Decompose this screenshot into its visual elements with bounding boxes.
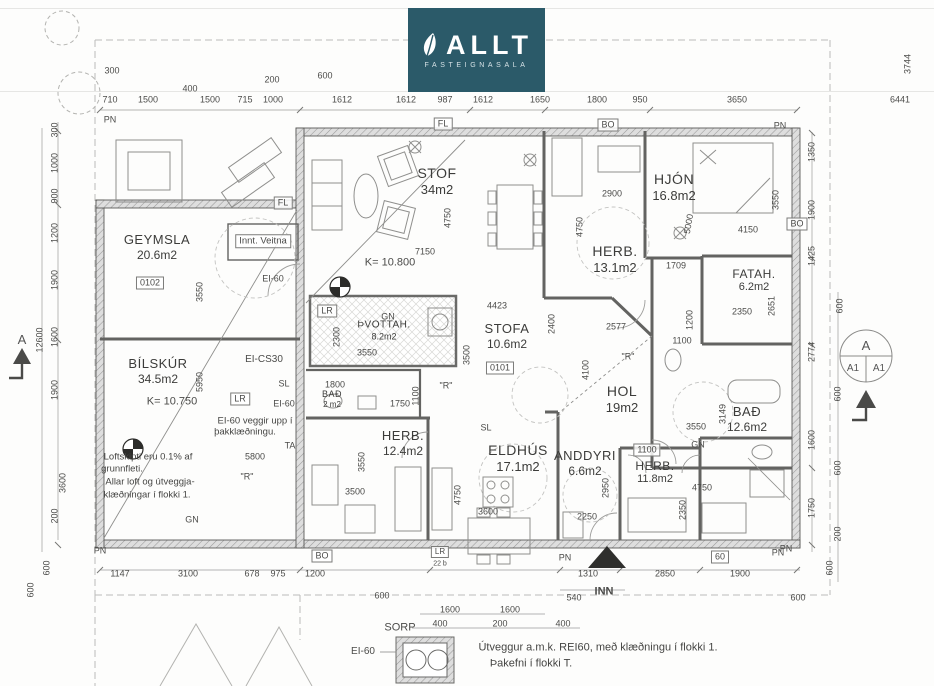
wall-tag: INN [595,587,614,598]
dimension-label: 1600 [440,606,460,615]
dimension-label: 7150 [415,248,435,257]
dimension-label: 1750 [808,498,817,518]
dimension-label: 1500 [138,96,158,105]
room-area: 2 m2 [322,400,342,410]
room-label-bílskúr: BÍLSKÚR34.5m2 [128,356,187,386]
note-text: grunnfleti. [101,464,143,474]
dimension-label: 3550 [196,282,205,302]
room-label-eldhús: ELDHÚS17.1m2 [488,442,548,474]
wall-tag: TA [285,442,296,451]
room-name: HJÓN [652,171,695,188]
dimension-label: 3600 [59,473,68,493]
room-name: BÍLSKÚR [128,356,187,372]
dimension-label: 1147 [110,570,129,579]
room-name: HERB. [592,243,637,260]
wall-tag: "R" [241,473,254,482]
note-text: EI-60 veggir upp í [218,416,293,426]
dimension-label: 2774 [808,342,817,362]
dimension-label: 600 [43,560,52,575]
dimension-label: 1600 [500,606,520,615]
dimension-label: 4750 [692,484,712,493]
wall-tag: EI-60 [351,647,375,657]
dimension-label: 710 [102,96,117,105]
dimension-label: 1200 [305,570,325,579]
dimension-label: 600 [317,72,332,81]
dimension-label: 3550 [686,423,706,432]
dimension-label: 1750 [390,400,410,409]
dimension-label: 2300 [333,327,342,347]
dimension-label: 2400 [548,314,557,334]
dimension-label: 1650 [530,96,550,105]
dimension-label: 1500 [200,96,220,105]
dimension-label: 3550 [357,349,377,358]
dimension-label: 2577 [606,323,626,332]
note-text: þakklæðningu. [214,427,276,437]
room-name: FATAH. [732,267,775,281]
room-label-geymsla: GEYMSLA20.6m2 [124,232,190,262]
dimension-label: 0101 [486,362,514,375]
wall-tag: K= 10.800 [365,258,415,269]
room-area: 6.2m2 [732,282,775,295]
dimension-label: 2651 [768,296,777,316]
room-area: 6.6m2 [554,464,616,478]
dimension-label: 4750 [454,485,463,505]
room-area: 8.2m2 [357,332,410,343]
wall-tag: PN [774,122,787,131]
dimension-label: 300 [104,67,119,76]
wall-tag: LR [317,305,337,318]
dimension-label: 1612 [396,96,416,105]
room-area: 34m2 [417,182,456,198]
dimension-label: 1612 [473,96,493,105]
dimension-label: 4750 [576,217,585,237]
dimension-label: 975 [270,570,285,579]
wall-tag: PN [94,547,107,556]
dimension-label: 3500 [345,488,365,497]
floor-plan-page: A A A1 A1 GEYMSLA20.6m2BÍLSKÚR34.5m2STOF… [0,0,934,686]
room-area: 12.6m2 [727,420,767,434]
room-area: 20.6m2 [124,248,190,262]
dimension-label: 2250 [577,513,597,522]
room-name: ANDDYRI [554,448,616,464]
dimension-label: 4750 [444,208,453,228]
dimension-label: 400 [182,85,197,94]
room-label-stof: STOF34m2 [417,165,456,197]
dimension-label: 3600 [478,508,498,517]
dimension-label: 5950 [196,372,205,392]
room-label-herb: HERB.11.8m2 [635,459,674,487]
dimension-label: 1425 [808,246,817,266]
room-name: HOL [606,383,639,400]
room-label-þvottah: ÞVOTTAH.8.2m2 [357,320,410,343]
room-label-hol: HOL19m2 [606,383,639,415]
logo-brand-text: ALLT [446,32,533,59]
dimension-label: 1000 [263,96,283,105]
wall-tag: 22 b [433,561,447,568]
room-label-bað: BAÐ12.6m2 [727,404,767,434]
dimension-label: 200 [492,620,507,629]
dimension-label: 3650 [727,96,747,105]
wall-tag: LR [431,546,449,558]
room-label-bað: BAÐ2 m2 [322,389,342,409]
dimension-label: 540 [566,594,581,603]
room-area: 17.1m2 [488,459,548,475]
dimension-label: 0102 [136,277,164,290]
room-area: 13.1m2 [592,260,637,276]
dimension-label: 300 [51,122,60,137]
wall-tag: GN [185,516,199,525]
note-text: Allar loft og útveggja- [105,477,194,487]
wall-tag: PN [772,549,785,558]
dimension-label: 2950 [602,478,611,498]
room-area: 10.6m2 [485,337,530,351]
dimension-label: 6441 [890,96,910,105]
wall-tag: LR [230,393,250,406]
note-text: Loftskipti eru 0.1% af [104,452,193,462]
dimension-label: 1900 [51,270,60,290]
plan-label-layer: GEYMSLA20.6m2BÍLSKÚR34.5m2STOF34m2HJÓN16… [0,0,934,686]
room-name: ELDHÚS [488,442,548,459]
dimension-label: 678 [244,570,259,579]
wall-tag: BO [786,218,807,231]
dimension-label: 3149 [719,404,728,424]
room-label-stofa: STOFA10.6m2 [485,321,530,351]
dimension-label: 1100 [633,444,660,457]
dimension-label: 1100 [672,337,691,346]
dimension-label: 1709 [666,262,686,271]
dimension-label: 1612 [332,96,352,105]
wall-tag: "R" [622,353,635,362]
dimension-label: 715 [237,96,252,105]
dimension-label: 2350 [679,500,688,520]
dimension-label: 1600 [51,327,60,347]
dimension-label: 3550 [772,190,781,210]
dimension-label: 1100 [412,386,421,405]
dimension-label: 3500 [463,345,472,365]
dimension-label: 2350 [732,308,752,317]
dimension-label: 600 [836,298,845,313]
room-area: 16.8m2 [652,188,695,204]
dimension-label: 2900 [602,190,622,199]
wall-tag: FL [434,118,453,131]
wall-tag: EI-60 [262,275,284,284]
wall-tag: GN [381,313,395,322]
dimension-label: 1310 [578,570,598,579]
dimension-label: 4150 [738,226,758,235]
dimension-label: 3100 [178,570,198,579]
wall-tag: BO [311,550,332,563]
dimension-label: 200 [51,508,60,523]
room-area: 19m2 [606,400,639,416]
dimension-label: 600 [826,560,835,575]
dimension-label: 600 [790,594,805,603]
dimension-label: 987 [437,96,452,105]
dimension-label: 1600 [808,430,817,450]
wall-tag: K= 10.750 [147,397,197,408]
room-name: HERB. [635,459,674,473]
dimension-label: 3550 [358,452,367,472]
dimension-label: 5000 [683,213,695,234]
dimension-label: 12600 [36,327,45,352]
logo-subtitle-text: FASTEIGNASALA [425,62,529,69]
dimension-label: 200 [834,526,843,541]
dimension-label: 1000 [51,153,60,173]
wall-tag: GN [691,441,705,450]
room-label-fatah: FATAH.6.2m2 [732,267,775,295]
room-label-hjón: HJÓN16.8m2 [652,171,695,203]
room-label-anddyri: ANDDYRI6.6m2 [554,448,616,478]
room-name: BAÐ [727,404,767,420]
dimension-label: 1800 [325,381,345,390]
dimension-label: 200 [264,76,279,85]
room-area: 34.5m2 [128,372,187,386]
wall-tag: SL [480,424,491,433]
wall-tag: "R" [440,382,453,391]
note-text: klæðningar í flokki 1. [103,490,190,500]
dimension-label: 950 [632,96,647,105]
wall-tag: EI-CS30 [245,355,283,365]
wall-tag: SL [278,380,289,389]
note-text: Útveggur a.m.k. REI60, með klæðningu í f… [478,643,717,654]
dimension-label: 1900 [730,570,750,579]
dimension-label: 1200 [51,223,60,243]
room-name: STOF [417,165,456,182]
room-name: BAÐ [322,389,342,400]
dimension-label: 2850 [655,570,675,579]
dimension-label: 900 [51,188,60,203]
wall-tag: FL [274,197,293,210]
dimension-label: 600 [374,592,389,601]
allt-fasteignasala-logo: ALLT FASTEIGNASALA [408,8,545,92]
dimension-label: 1900 [51,380,60,400]
dimension-label: 1800 [587,96,607,105]
dimension-label: 4100 [582,360,591,380]
room-area: 12.4m2 [382,444,424,458]
dimension-label: 4423 [487,302,507,311]
wall-tag: PN [559,554,572,563]
dimension-label: 400 [432,620,447,629]
wall-tag: BO [597,119,618,132]
note-text: Þakefni í flokki T. [490,659,572,670]
room-label: Innt. Veitna [235,234,291,248]
room-label-herb: HERB.12.4m2 [382,428,424,458]
dimension-label: 3744 [904,54,913,74]
wall-tag: SORP [384,623,415,634]
dimension-label: 400 [555,620,570,629]
room-area: 11.8m2 [635,474,674,487]
wall-tag: PN [104,116,117,125]
dimension-label: 1900 [808,200,817,220]
room-name: STOFA [485,321,530,337]
dimension-label: 1200 [686,310,695,330]
dimension-label: 600 [27,582,36,597]
wall-tag: EI-60 [273,400,295,409]
dimension-label: 600 [834,460,843,475]
dimension-label: 600 [834,386,843,401]
room-label-herb: HERB.13.1m2 [592,243,637,275]
room-name: GEYMSLA [124,232,190,248]
dimension-label: 5800 [245,453,265,462]
wall-tag: 60 [711,551,729,564]
dimension-label: 1350 [808,142,817,162]
room-name: HERB. [382,428,424,444]
leaf-icon [420,32,440,58]
